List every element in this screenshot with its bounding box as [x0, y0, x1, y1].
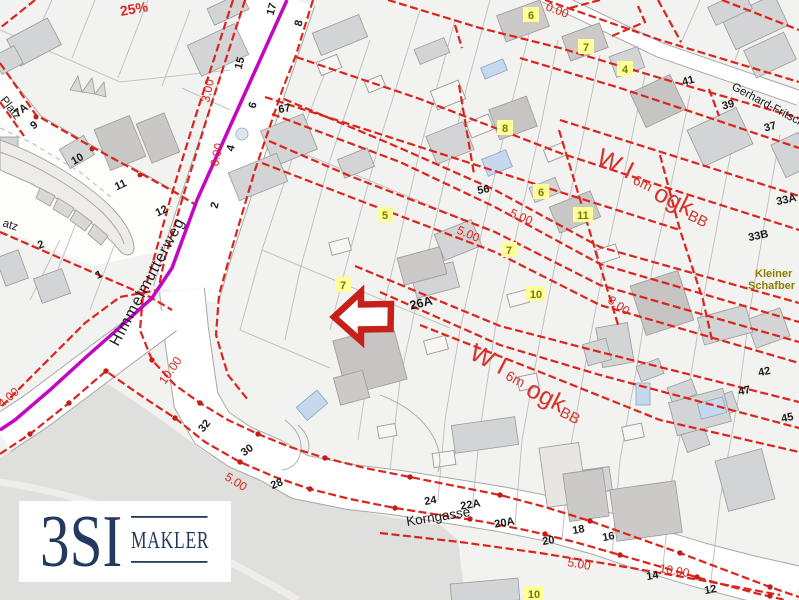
svg-text:7: 7	[583, 42, 589, 54]
svg-text:6: 6	[528, 10, 534, 22]
svg-text:8: 8	[502, 123, 508, 135]
svg-text:5: 5	[382, 210, 388, 222]
svg-text:7: 7	[340, 280, 346, 292]
svg-text:7: 7	[506, 245, 512, 257]
svg-text:6: 6	[538, 187, 544, 199]
svg-text:4: 4	[622, 64, 629, 76]
svg-text:47: 47	[737, 384, 751, 398]
svg-text:18: 18	[571, 523, 585, 537]
svg-text:10: 10	[530, 289, 542, 301]
svg-text:MAKLER: MAKLER	[131, 526, 209, 553]
svg-text:3SI: 3SI	[40, 501, 122, 583]
svg-text:Schafber: Schafber	[748, 280, 796, 292]
svg-text:16: 16	[601, 530, 615, 544]
svg-text:56: 56	[476, 183, 490, 197]
svg-text:12: 12	[703, 583, 717, 597]
svg-text:20: 20	[541, 534, 555, 548]
svg-text:11: 11	[577, 210, 589, 222]
svg-text:45: 45	[780, 411, 794, 425]
svg-text:Kleiner: Kleiner	[755, 268, 793, 280]
svg-text:42: 42	[757, 365, 771, 379]
svg-text:10: 10	[528, 589, 540, 600]
svg-text:67: 67	[277, 102, 291, 116]
